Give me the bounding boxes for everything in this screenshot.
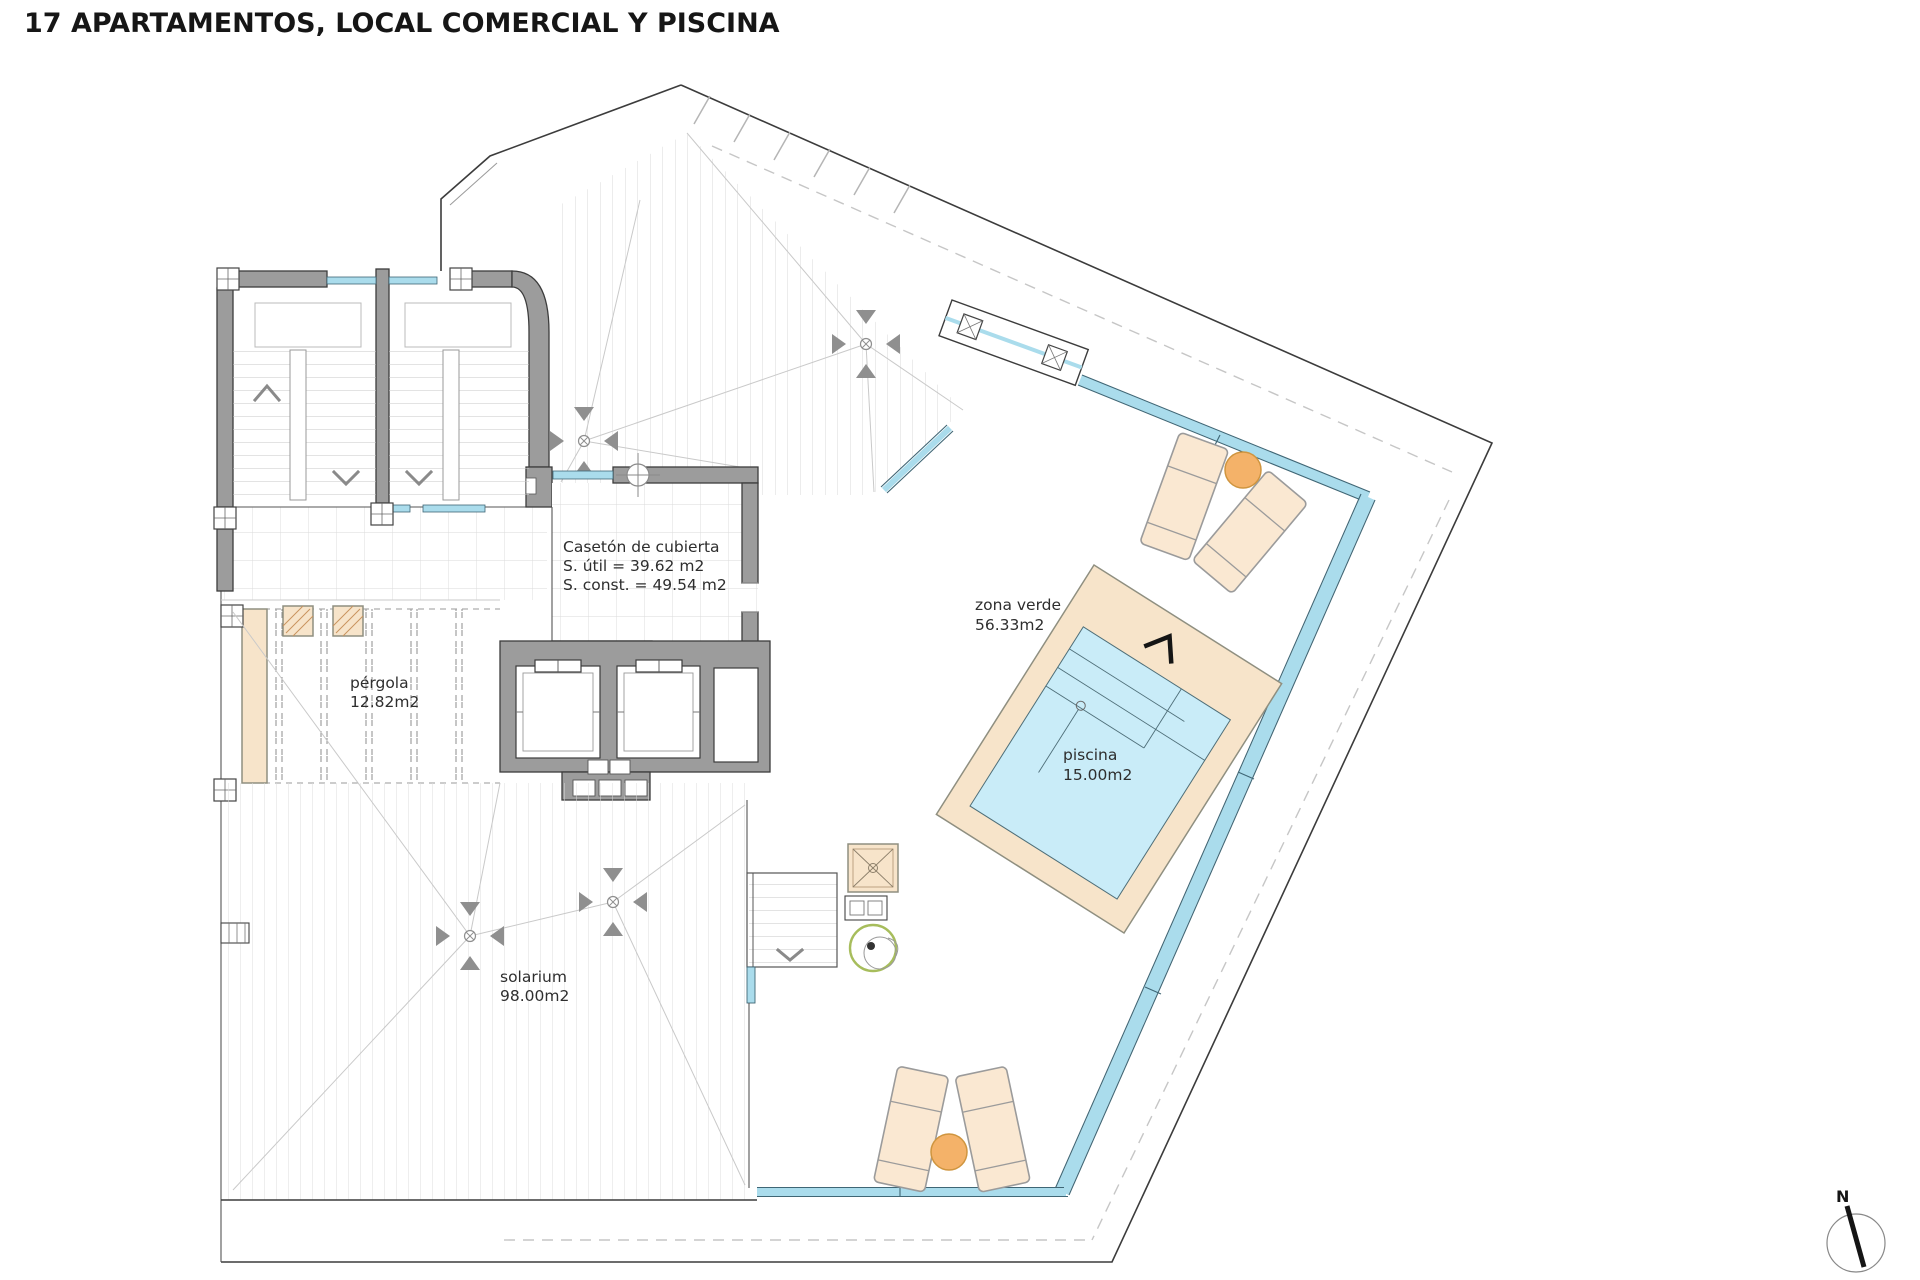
- window-glass: [553, 471, 613, 479]
- caseton-room: Casetón de cubierta S. útil = 39.62 m2 S…: [552, 453, 758, 655]
- window-glass: [327, 277, 376, 284]
- solarium-label: solarium: [500, 968, 567, 986]
- caseton-label: Casetón de cubierta: [563, 538, 720, 556]
- sun-lounger: [873, 1066, 948, 1192]
- pergola-beam: [242, 609, 267, 783]
- caseton-area-const-label: S. const. = 49.54 m2: [563, 576, 727, 594]
- pergola-area: pérgola 12.82m2: [214, 605, 500, 801]
- column-marker-icon: [221, 605, 243, 627]
- zona-verde-area-label: 56.33m2: [975, 616, 1044, 634]
- page-title: 17 APARTAMENTOS, LOCAL COMERCIAL Y PISCI…: [24, 8, 780, 39]
- piscina-label: piscina: [1063, 746, 1117, 764]
- pergola-post: [333, 606, 363, 636]
- side-table: [1225, 452, 1261, 488]
- window-glass: [423, 505, 485, 512]
- side-table: [931, 1134, 967, 1170]
- caseton-area-util-label: S. útil = 39.62 m2: [563, 557, 704, 575]
- piscina-area-label: 15.00m2: [1063, 766, 1132, 784]
- sun-lounger: [955, 1066, 1030, 1192]
- north-compass: N: [1827, 1187, 1885, 1272]
- potted-plant-icon: [850, 925, 898, 971]
- elevator-shaft-2: [617, 660, 700, 758]
- column-marker-icon: [450, 268, 472, 290]
- pergola-post: [283, 606, 313, 636]
- pergola-label: pérgola: [350, 674, 409, 692]
- glass-strip: [747, 967, 755, 1003]
- vent-box: [845, 896, 887, 920]
- machine-room: [714, 668, 758, 762]
- scupper-box: [221, 923, 249, 943]
- pergola-area-label: 12.82m2: [350, 693, 419, 711]
- outdoor-shower: [848, 844, 898, 892]
- column-marker-icon: [371, 503, 393, 525]
- glass-wall-segment: [939, 300, 1088, 385]
- solarium-area-label: 98.00m2: [500, 987, 569, 1005]
- stairwell-left: [233, 303, 376, 503]
- stair-down: [747, 800, 837, 1188]
- window-glass: [389, 277, 437, 284]
- zona-verde-label: zona verde: [975, 596, 1061, 614]
- elevator-shaft-1: [516, 660, 600, 758]
- stairwell-right: [389, 303, 529, 503]
- stair-core-building: [214, 268, 552, 600]
- roof-area: [550, 133, 963, 495]
- column-marker-icon: [217, 268, 239, 290]
- floor-plan-page: Casetón de cubierta S. útil = 39.62 m2 S…: [0, 0, 1920, 1280]
- column-marker-icon: [214, 507, 236, 529]
- elevator-block: [500, 641, 770, 800]
- compass-north-label: N: [1836, 1187, 1849, 1206]
- floor-plan-drawing: Casetón de cubierta S. útil = 39.62 m2 S…: [0, 0, 1920, 1280]
